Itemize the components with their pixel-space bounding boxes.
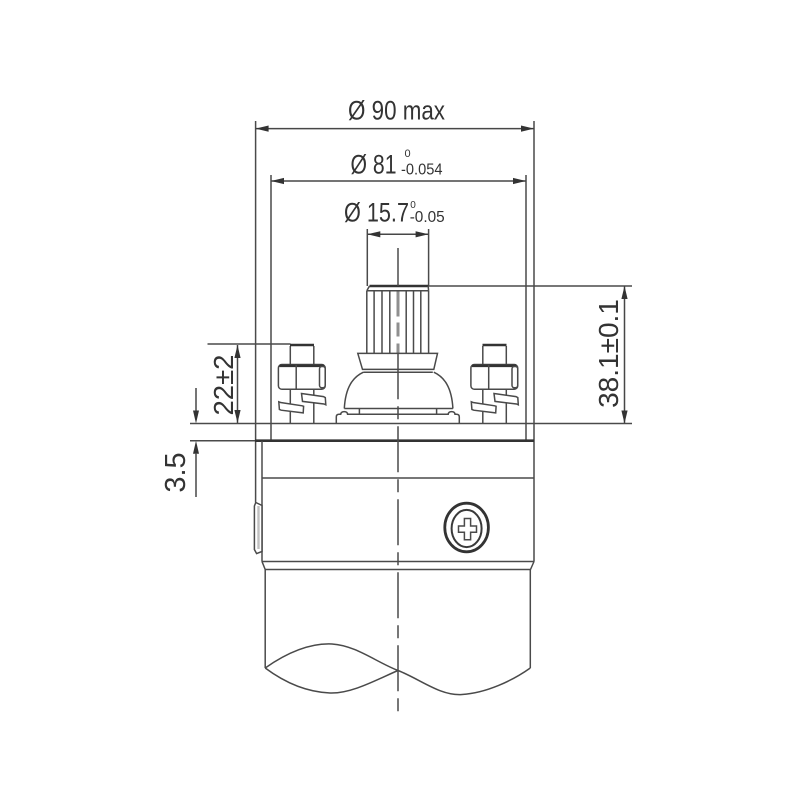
svg-text:Ø 81: Ø 81: [351, 150, 397, 180]
svg-text:-0.054: -0.054: [401, 162, 443, 179]
svg-text:Ø 90 max: Ø 90 max: [348, 96, 445, 126]
svg-text:3.5: 3.5: [160, 452, 192, 492]
svg-text:22±2: 22±2: [208, 355, 239, 416]
svg-text:-0.05: -0.05: [410, 209, 445, 226]
svg-text:Ø 15.7: Ø 15.7: [344, 198, 409, 228]
svg-text:0: 0: [405, 148, 411, 160]
svg-text:38.1±0.1: 38.1±0.1: [593, 299, 624, 408]
